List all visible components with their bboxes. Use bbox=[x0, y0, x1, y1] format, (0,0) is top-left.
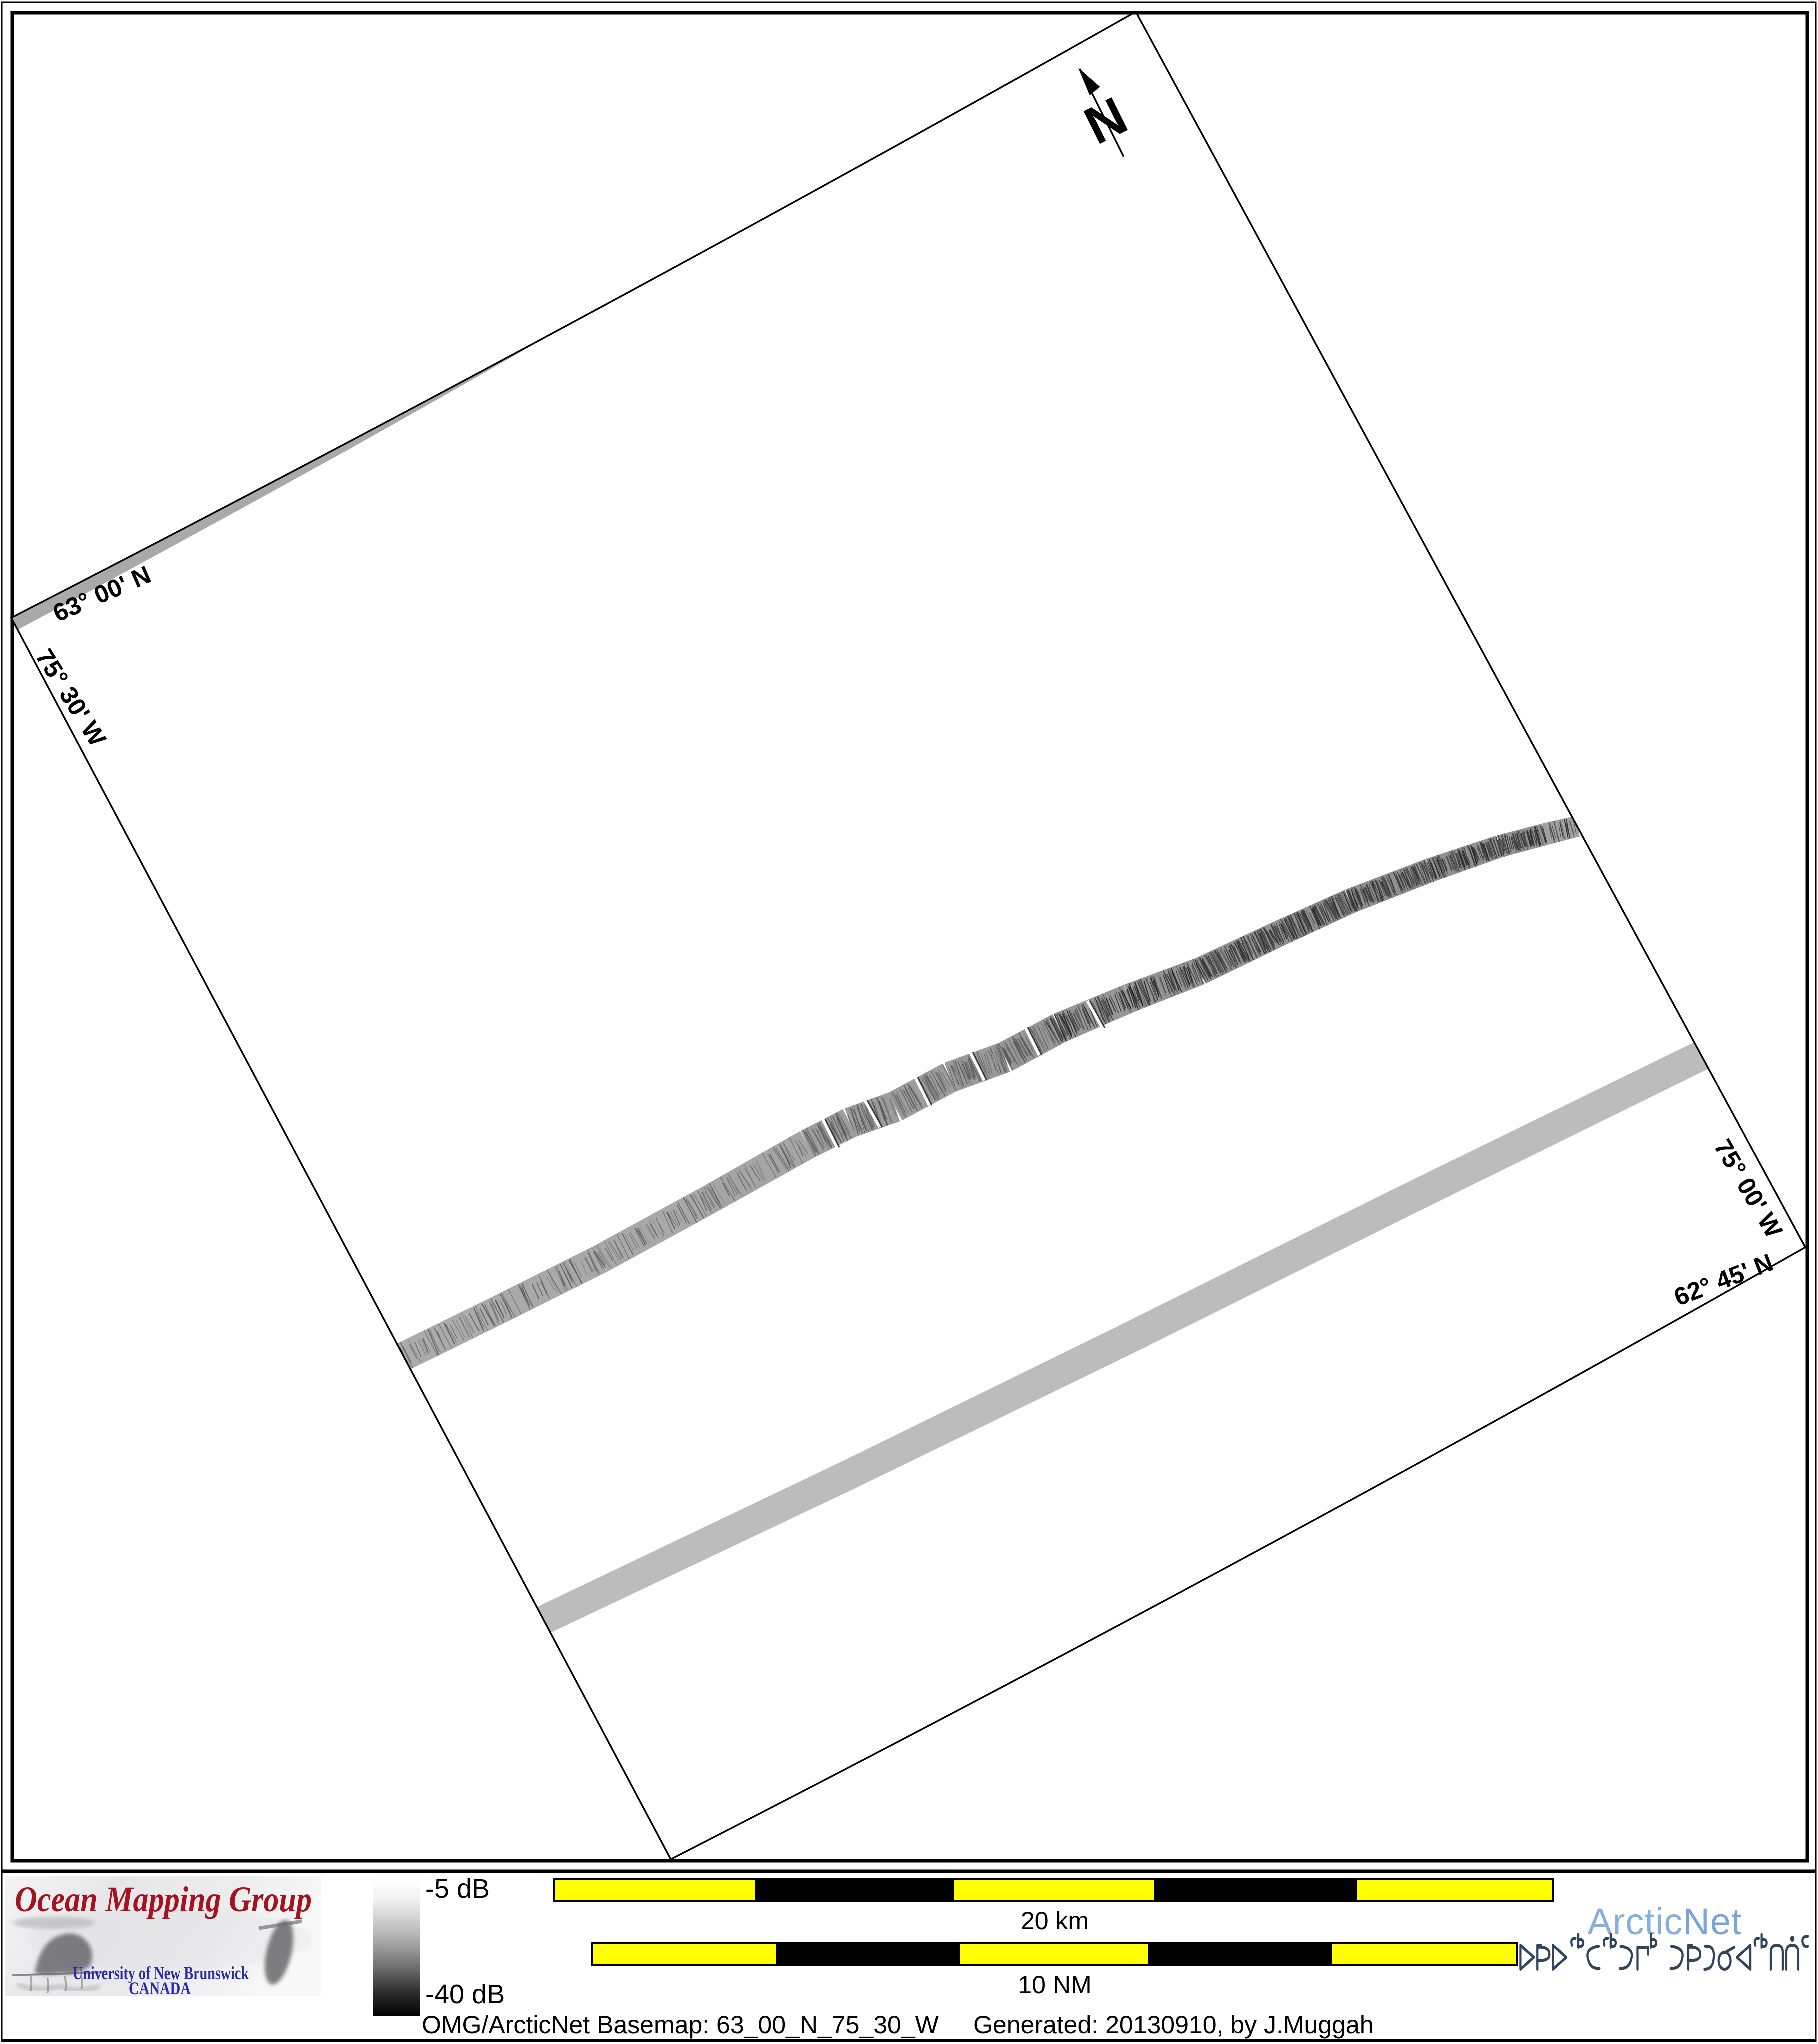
svg-text:OMG/ArcticNet Basemap: 63_00_N: OMG/ArcticNet Basemap: 63_00_N_75_30_W bbox=[422, 2011, 939, 2039]
svg-text:-40 dB: -40 dB bbox=[425, 1979, 505, 2009]
svg-text:Generated: 20130910, by J.Mugg: Generated: 20130910, by J.Muggah bbox=[973, 2011, 1374, 2039]
svg-text:-5 dB: -5 dB bbox=[425, 1874, 490, 1904]
svg-text:20 km: 20 km bbox=[1021, 1907, 1089, 1935]
svg-text:CANADA: CANADA bbox=[129, 1978, 191, 1998]
svg-text:10 NM: 10 NM bbox=[1018, 1971, 1091, 1999]
svg-text:Ocean Mapping Group: Ocean Mapping Group bbox=[15, 1879, 312, 1919]
